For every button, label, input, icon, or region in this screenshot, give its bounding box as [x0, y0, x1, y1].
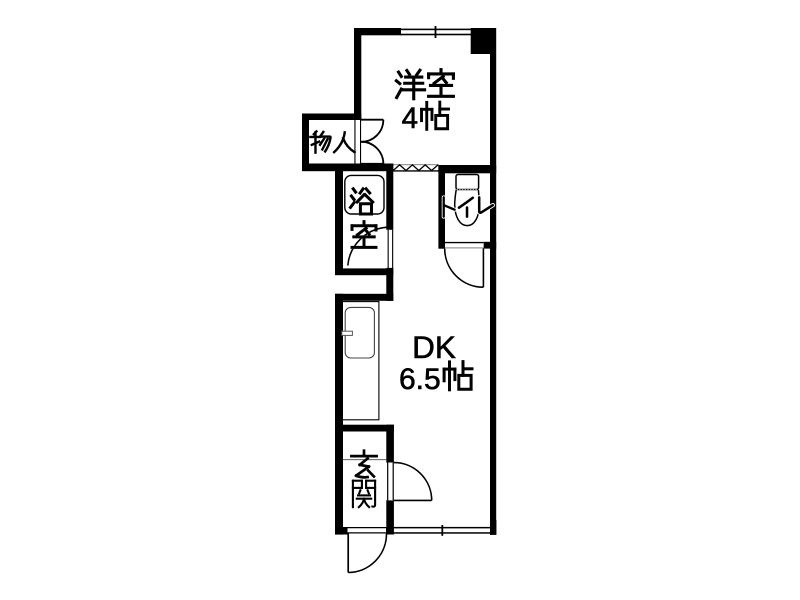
svg-text:DK: DK [412, 329, 456, 365]
svg-text:4: 4 [402, 102, 418, 135]
svg-text:6.5: 6.5 [399, 363, 441, 396]
